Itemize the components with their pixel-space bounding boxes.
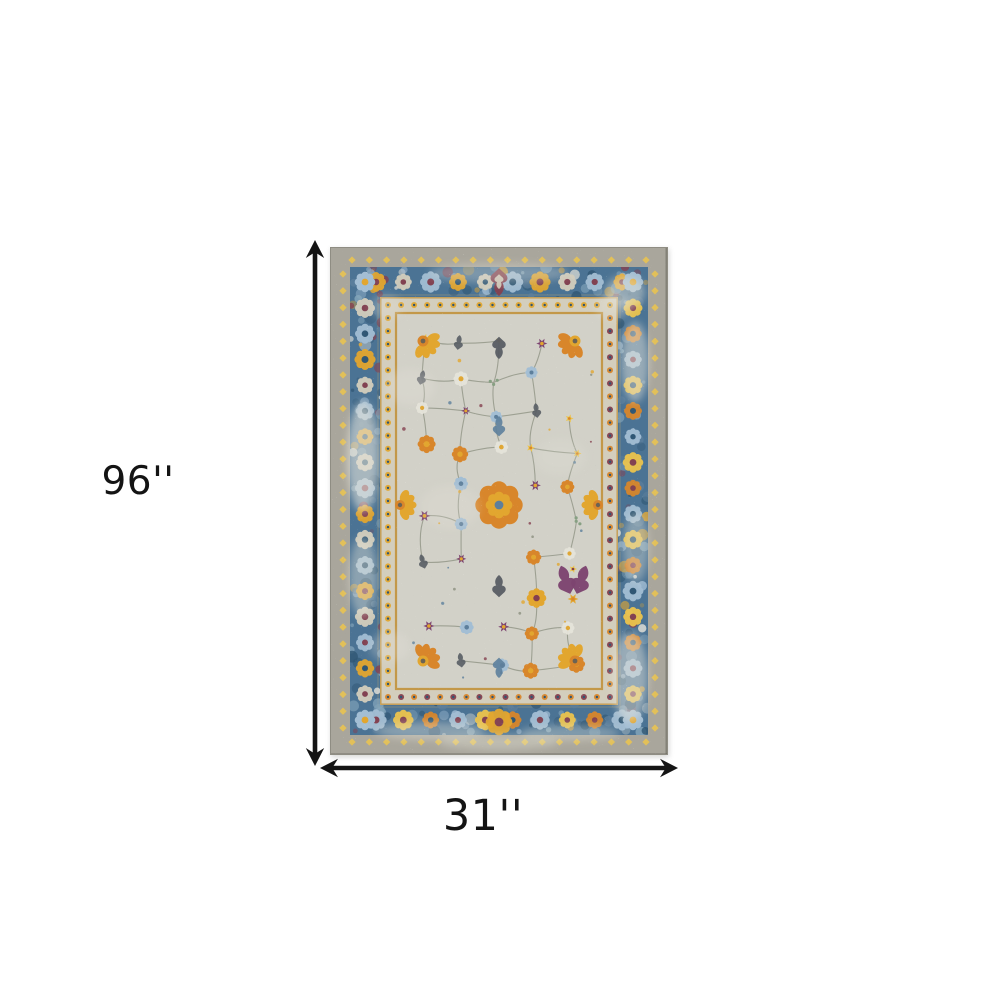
height-dimension-label: 96'' [90, 462, 186, 503]
rug-product-image [330, 247, 668, 755]
width-dimension-arrow [318, 753, 680, 783]
height-dimension-arrow [300, 238, 330, 768]
product-dimension-figure: 96'' 31'' [0, 0, 1000, 1000]
rug-pattern-svg [330, 247, 668, 755]
width-dimension-label: 31'' [435, 794, 531, 839]
